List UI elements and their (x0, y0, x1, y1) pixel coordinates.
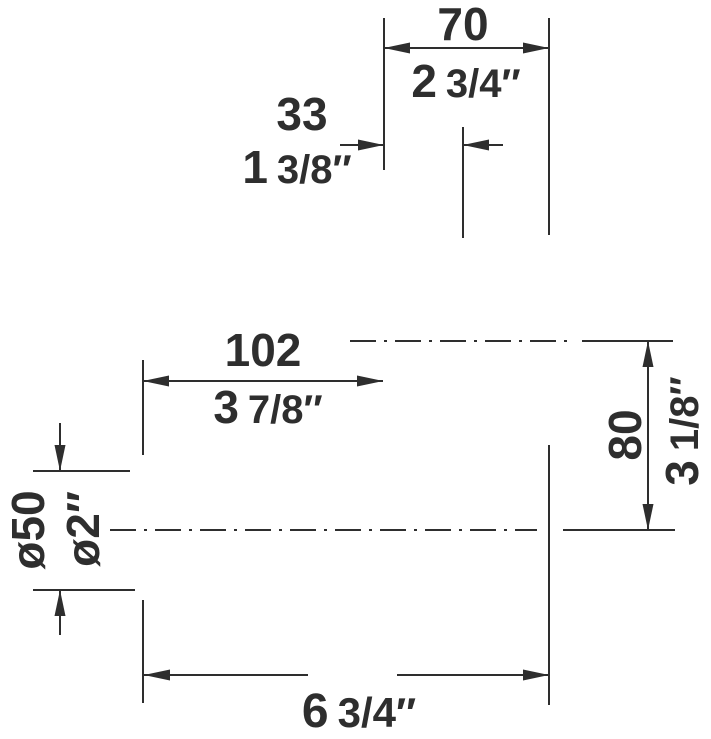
drawing-canvas: 70 23/4″ 33 13/8″ 102 37/8″ 80 31/8″ ø50… (0, 0, 711, 739)
label-top-offset-inch-frac: 3/8″ (277, 148, 352, 192)
label-drop-height-inch-main: 3 (656, 460, 708, 486)
label-group: 70 23/4″ 33 13/8″ 102 37/8″ 80 31/8″ ø50… (2, 0, 708, 738)
label-bottom-width-inch-main: 6 (302, 685, 329, 738)
arrowhead-d50-bottom (55, 590, 66, 616)
label-projection-inch-frac: 7/8″ (248, 388, 323, 432)
label-bottom-width-inch: 63/4″ (302, 685, 416, 738)
label-drop-height-inch: 31/8″ (656, 376, 708, 485)
arrowhead-80-top (643, 341, 654, 367)
label-drop-height-inch-frac: 1/8″ (663, 376, 707, 451)
label-top-offset-inch: 13/8″ (242, 141, 351, 193)
arrowhead-d50-top (55, 445, 66, 471)
arrowhead-70-left (384, 43, 410, 54)
label-pipe-diameter-inch: ø2″ (57, 491, 109, 567)
label-top-offset-mm: 33 (276, 88, 327, 140)
arrowhead-33-left (358, 140, 384, 151)
label-pipe-diameter-mm: ø50 (2, 490, 54, 569)
line-group (33, 18, 675, 705)
arrowhead-group (55, 43, 654, 681)
arrowhead-102-right (357, 376, 383, 387)
label-projection-inch: 37/8″ (213, 381, 322, 433)
label-top-width-inch: 23/4″ (411, 55, 520, 107)
technical-drawing: 70 23/4″ 33 13/8″ 102 37/8″ 80 31/8″ ø50… (0, 0, 711, 739)
arrowhead-33-right (463, 140, 489, 151)
arrowhead-70-right (523, 43, 549, 54)
arrowhead-bottom-right (523, 670, 549, 681)
arrowhead-80-bottom (643, 504, 654, 530)
label-top-offset-inch-main: 1 (242, 141, 268, 193)
label-top-width-inch-main: 2 (411, 55, 437, 107)
label-drop-height-mm: 80 (599, 409, 651, 460)
label-top-width-mm: 70 (437, 0, 488, 50)
arrowhead-102-left (143, 376, 169, 387)
label-projection-inch-main: 3 (213, 381, 239, 433)
arrowhead-bottom-left (144, 670, 170, 681)
label-projection-mm: 102 (225, 324, 302, 376)
label-bottom-width-inch-frac: 3/4″ (338, 689, 417, 736)
label-top-width-inch-frac: 3/4″ (446, 62, 521, 106)
